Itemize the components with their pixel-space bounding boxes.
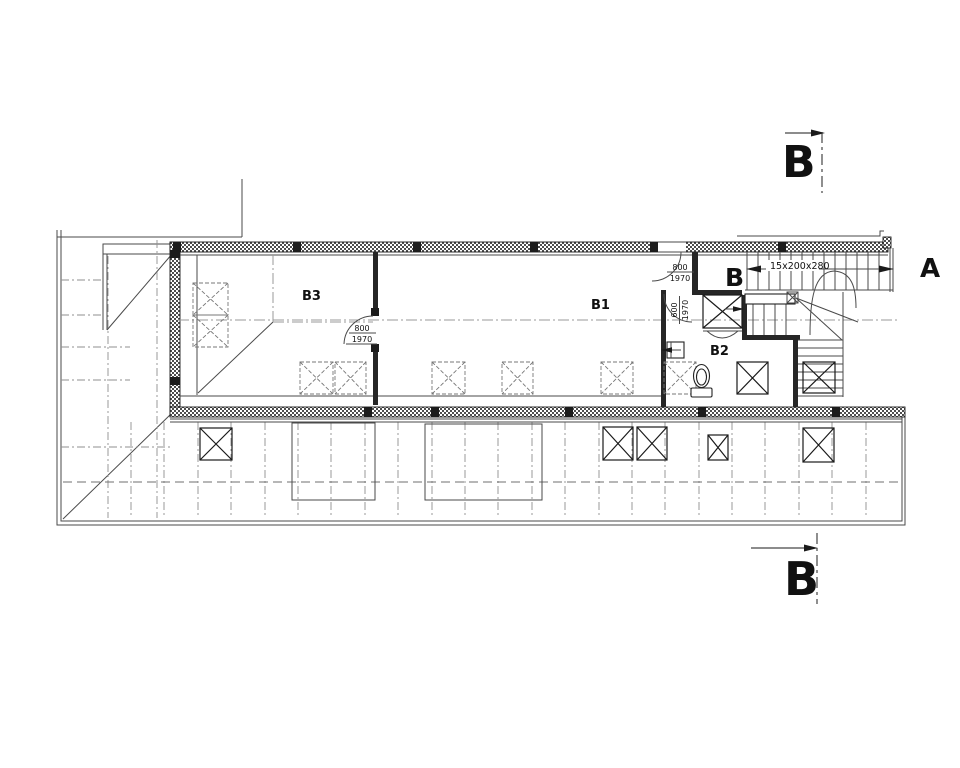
section-arrow-bottom-icon [804,545,818,552]
stair-arrow-right [879,266,894,273]
svg-text:1970: 1970 [681,300,690,320]
section-label-b-stair: B [725,263,744,292]
room-label-b3: B3 [302,289,321,304]
toilet-icon [691,365,712,398]
stair-walking-line [810,271,856,335]
chimney-box-b2 [737,362,768,394]
room-b3-door-label: 800 1970 [349,324,376,344]
door-labels: 800 1970 600 1970 800 1970 [349,263,694,344]
section-label-b-top: B [782,137,816,188]
stair-break-lines [796,298,858,340]
svg-text:1970: 1970 [670,274,690,283]
dashed-floor-boxes [193,283,633,394]
floor-plan-canvas: 15x200x280 [0,0,960,768]
svg-text:1970: 1970 [352,335,372,344]
stair-annotation: 15x200x280 [770,261,830,272]
roof-windows [292,423,542,500]
section-marker-b-bottom: B [751,533,819,606]
svg-text:600: 600 [670,302,679,317]
sink [703,331,742,338]
left-annex-outline [103,244,172,330]
roof-outline [57,179,905,525]
svg-text:800: 800 [354,324,369,333]
grid-lines [61,240,900,518]
roof-chimneys [200,427,834,462]
entry-door-label: 800 1970 [667,263,694,283]
section-label-b-bottom: B [784,552,819,606]
section-marker-b-top: B [782,130,825,194]
section-label-a: A [920,254,940,284]
attic-floor-plan: 15x200x280 [0,0,960,768]
svg-text:800: 800 [672,263,687,272]
interior-lines [180,255,888,396]
room-label-b1: B1 [591,298,610,313]
section-arrow-top-icon [811,130,825,137]
room-label-b2: B2 [710,344,729,359]
stair-arrow-left [746,266,761,273]
duct-shaft-box [703,295,742,328]
staircase: 15x200x280 [745,248,894,397]
